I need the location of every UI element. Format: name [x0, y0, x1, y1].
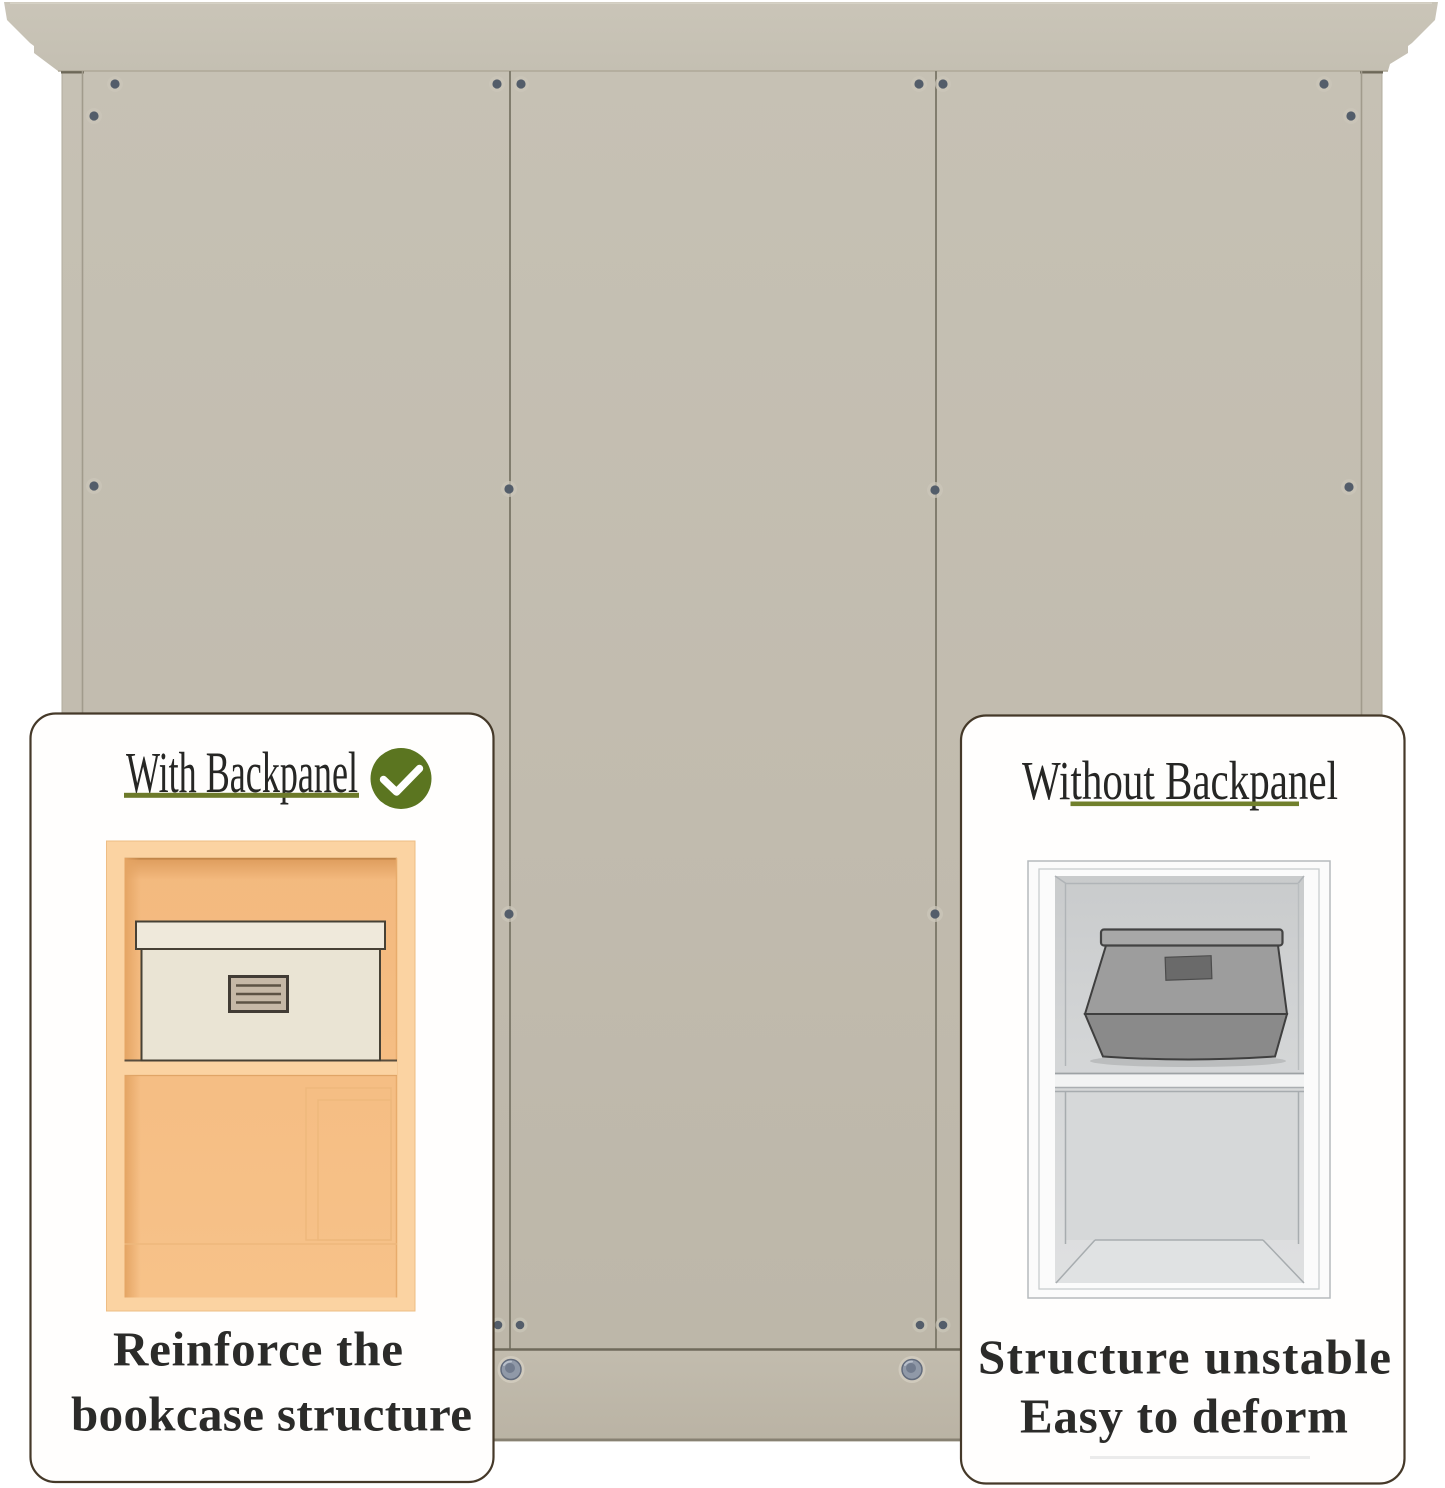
svg-text:Structure unstable: Structure unstable	[978, 1330, 1391, 1385]
svg-text:Reinforce the: Reinforce the	[113, 1322, 403, 1377]
svg-text:bookcase structure: bookcase structure	[71, 1387, 472, 1442]
svg-text:Easy to deform: Easy to deform	[1020, 1389, 1348, 1444]
